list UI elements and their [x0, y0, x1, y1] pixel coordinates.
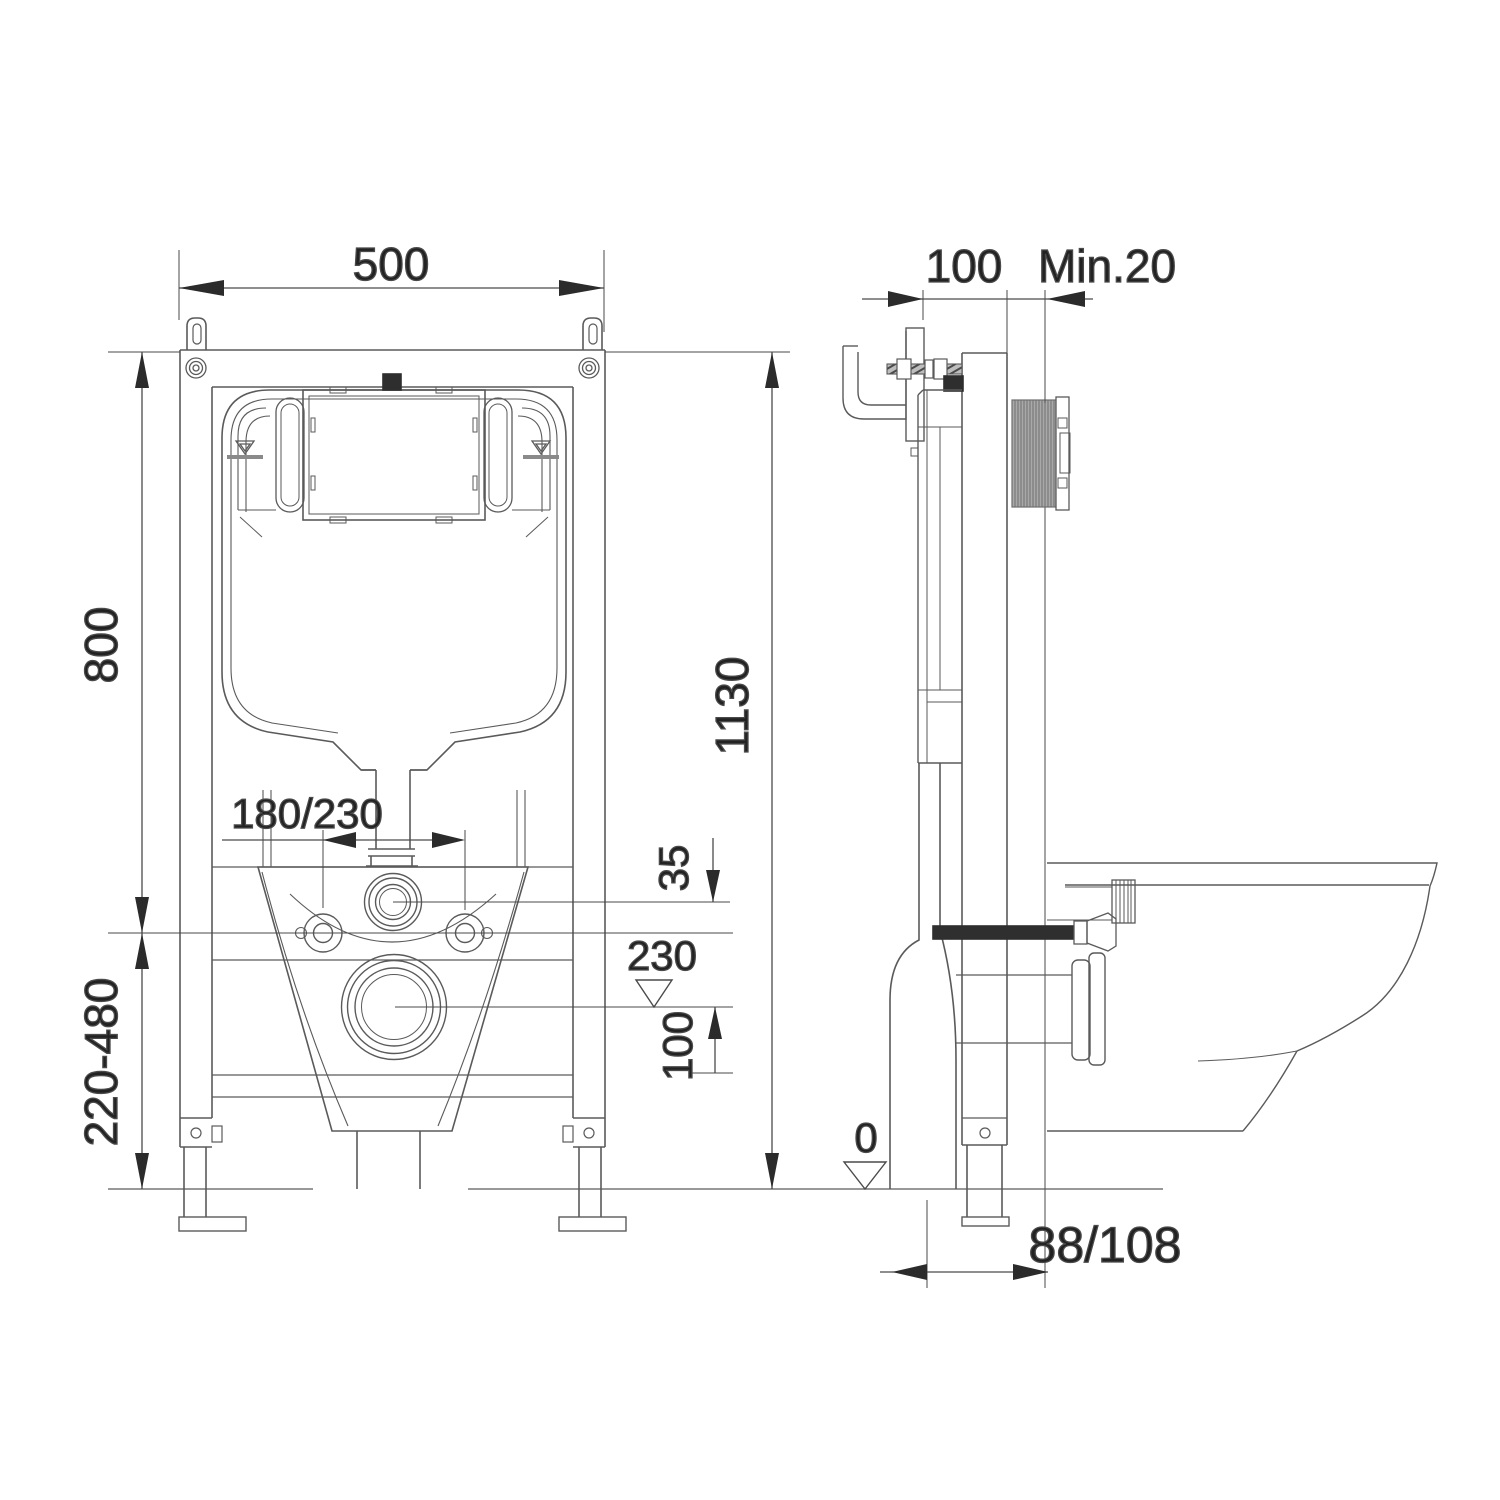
level-triangle-icon — [636, 980, 672, 1007]
soil-pipe-front — [357, 1131, 420, 1189]
dim-label-floor-level: 0 — [854, 1114, 877, 1161]
dim-inlet-axis-offset: 35 — [650, 838, 720, 902]
dim-label-leg-adjustment: 220-480 — [75, 978, 127, 1147]
dim-label-frame-depth: 100 — [926, 240, 1003, 292]
water-level-icon-right — [523, 441, 559, 459]
dim-label-total-height: 1130 — [706, 657, 758, 756]
access-window — [303, 374, 485, 523]
inlet-stub — [1047, 880, 1135, 923]
inspection-shaft — [1012, 397, 1070, 510]
dim-label-inlet-axis-offset: 35 — [650, 845, 697, 892]
drawing-svg: 500 100 Min.20 800 220-480 — [0, 0, 1500, 1500]
outlet-connector — [1072, 953, 1105, 1065]
dim-leg-adjustment: 220-480 — [75, 933, 149, 1189]
cistern-side — [911, 390, 962, 763]
bowl-bracket — [258, 867, 528, 1131]
dim-label-flush-bend-offset: 180/230 — [231, 790, 383, 837]
rail-clamp-block — [944, 376, 963, 391]
dim-label-outlet-drop: 100 — [654, 1011, 701, 1081]
side-view — [843, 328, 1437, 1288]
dim-cistern-height: 800 — [75, 352, 180, 933]
dim-label-min-clearance: Min.20 — [1038, 240, 1176, 292]
anchor-rod — [933, 913, 1116, 951]
filler-valve-stub — [383, 374, 401, 390]
dim-label-outlet-axis-level: 230 — [627, 932, 697, 979]
dim-label-cistern-height: 800 — [75, 607, 127, 684]
dim-frame-width: 500 — [179, 238, 604, 332]
dimensions: 500 100 Min.20 800 220-480 — [75, 238, 1181, 1288]
frame-outline — [180, 350, 605, 1147]
front-view — [179, 318, 626, 1231]
floor-level-triangle-icon — [844, 1162, 886, 1189]
level-floor: 0 — [844, 1114, 886, 1189]
mounting-tabs — [187, 318, 602, 350]
frame-rail — [962, 353, 1009, 1226]
dim-outlet-drop: 100 — [654, 1007, 733, 1081]
dim-outlet-wall-offset: 88/108 — [880, 1200, 1181, 1288]
dim-label-outlet-wall-offset: 88/108 — [1029, 1217, 1182, 1273]
cistern — [222, 390, 566, 770]
level-outlet-axis: 230 — [627, 932, 697, 1007]
threaded-rod-top — [887, 359, 963, 391]
wall-bracket — [843, 328, 924, 441]
dim-flush-bend-offset: 180/230 — [222, 790, 465, 910]
water-level-icon-left — [227, 441, 263, 459]
technical-drawing-canvas: 500 100 Min.20 800 220-480 — [0, 0, 1500, 1500]
dim-label-frame-width: 500 — [353, 238, 430, 290]
